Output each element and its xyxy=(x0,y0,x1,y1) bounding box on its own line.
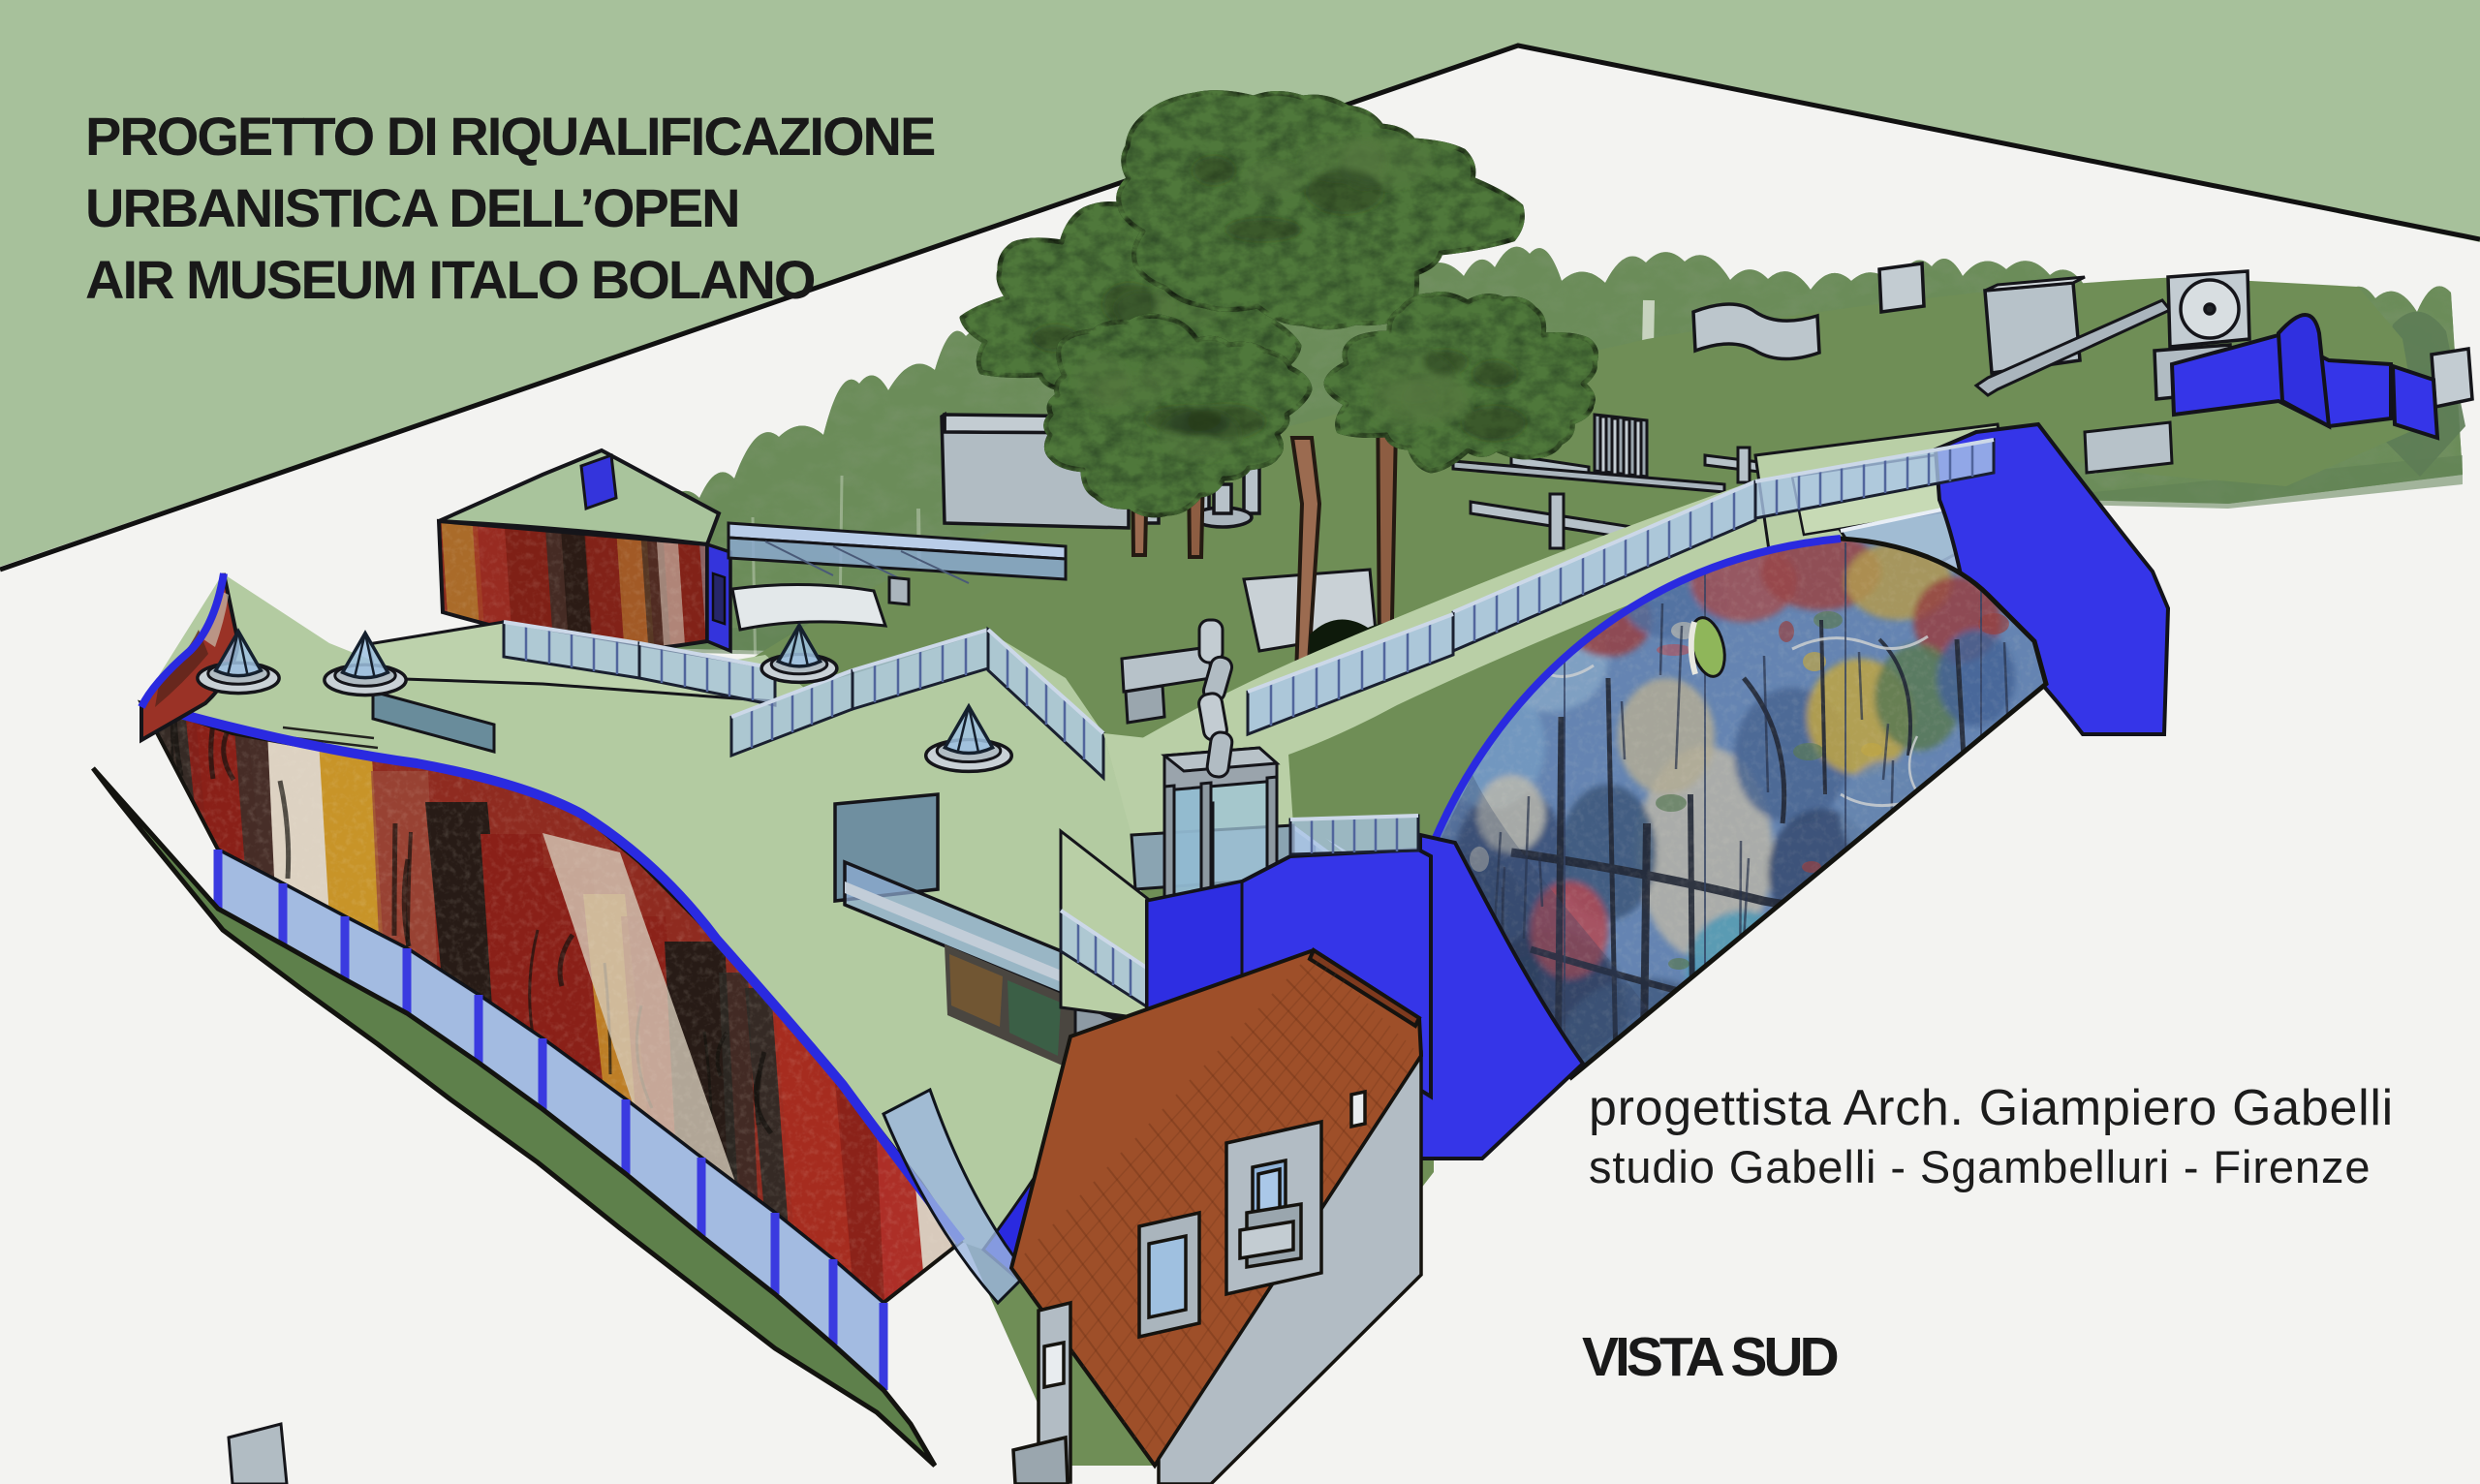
svg-text:VISTA SUD: VISTA SUD xyxy=(1582,1326,1838,1388)
svg-text:URBANISTICA DELL’OPEN: URBANISTICA DELL’OPEN xyxy=(85,177,739,238)
svg-text:studio Gabelli - Sgambelluri -: studio Gabelli - Sgambelluri - Firenze xyxy=(1589,1141,2371,1192)
svg-text:PROGETTO DI RIQUALIFICAZIONE: PROGETTO DI RIQUALIFICAZIONE xyxy=(85,106,935,167)
svg-text:progettista Arch. Giampiero Ga: progettista Arch. Giampiero Gabelli xyxy=(1589,1080,2394,1136)
svg-text:AIR MUSEUM ITALO BOLANO: AIR MUSEUM ITALO BOLANO xyxy=(85,249,815,310)
